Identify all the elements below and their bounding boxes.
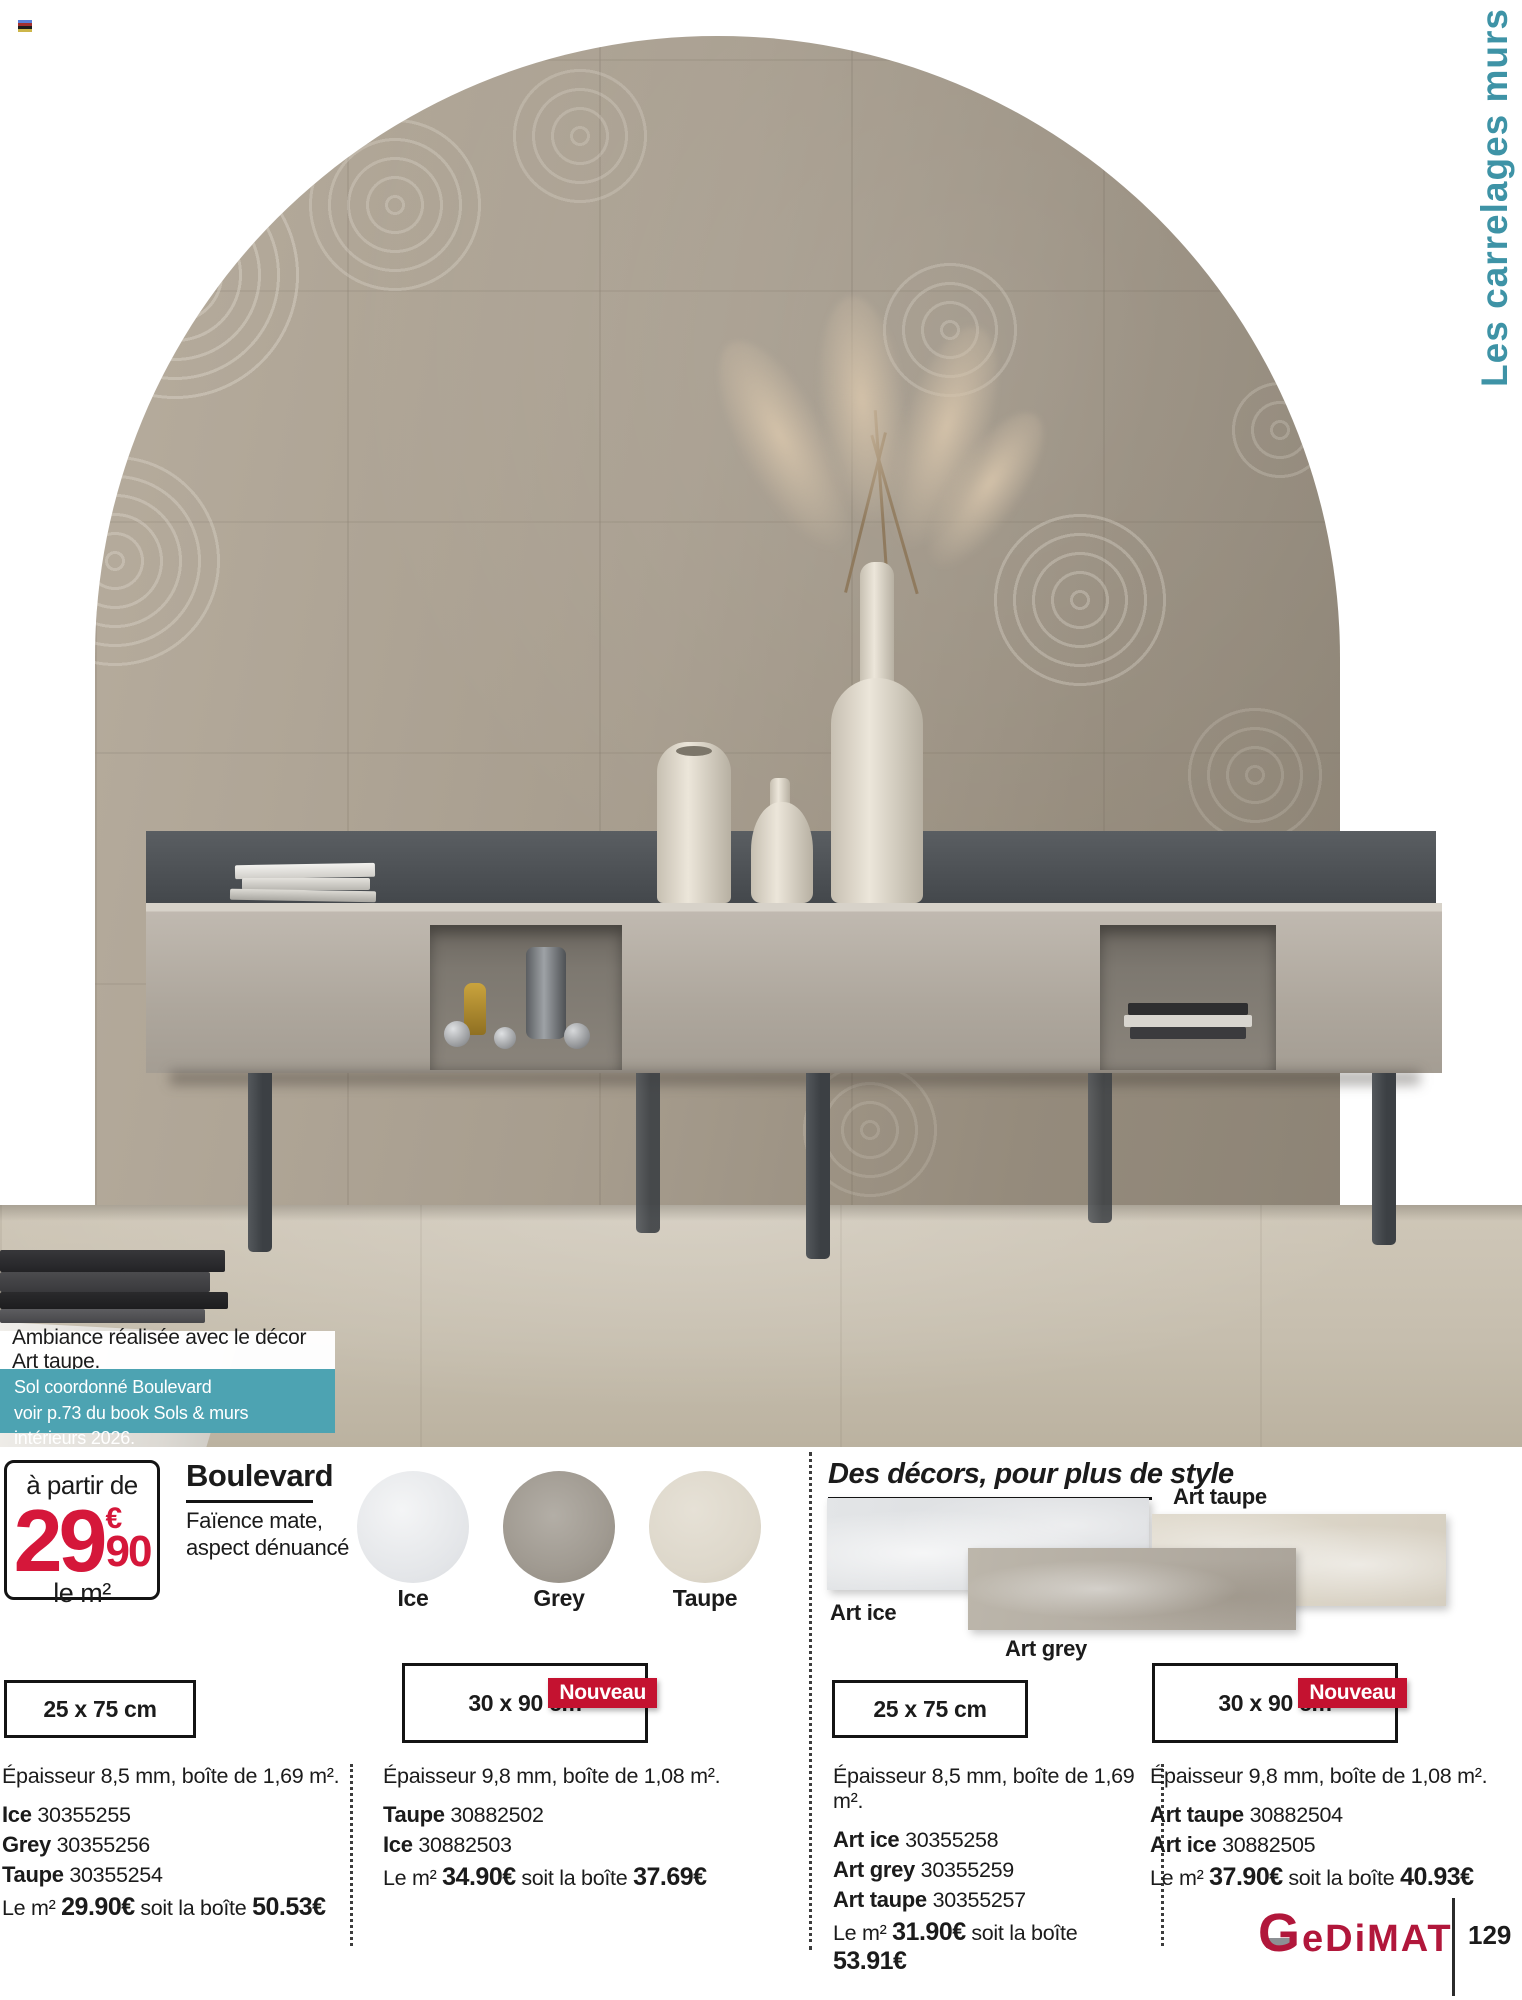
note-line2: voir p.73 du book Sols & murs intérieurs… [14,1401,325,1447]
ref-sku: 30355254 [69,1863,162,1887]
product-details-decors-25x75: Épaisseur 8,5 mm, boîte de 1,69 m². Art … [833,1764,1153,1976]
box-price: 53.91€ [833,1947,906,1975]
size-box-30x90: 30 x 90 cm Nouveau [402,1663,648,1743]
damask-medallion [985,505,1175,695]
size-box-30x90-decor: 30 x 90 cm Nouveau [1152,1663,1398,1743]
ref-name: Taupe [383,1802,445,1827]
ref-line: Ice 30355255 [2,1800,342,1830]
ref-name: Art grey [833,1857,915,1882]
photo-caption-text: Ambiance réalisée avec le décor Art taup… [12,1326,335,1374]
size-label: 25 x 75 cm [43,1696,156,1723]
cylinder-vase-mouth [676,746,712,756]
tall-vase-neck [860,562,894,692]
sideboard-open-niche [430,925,622,1070]
shelf-books [1128,1003,1248,1015]
price-amount-row: 29 € 90 [7,1501,157,1580]
box-label: soit la boîte [1288,1866,1394,1890]
cylinder-vase [657,742,731,903]
size-box-25x75: 25 x 75 cm [4,1680,196,1738]
ref-sku: 30355257 [933,1888,1026,1912]
price-line: Le m² 34.90€ soit la boîte 37.69€ [383,1863,763,1892]
size-label: 25 x 75 cm [873,1696,986,1723]
shelf-books [1130,1027,1246,1039]
shelf-books [1124,1015,1252,1027]
box-price: 40.93€ [1400,1863,1473,1891]
m2-label: Le m² [1150,1866,1203,1890]
stacked-books [242,878,370,890]
box-price: 50.53€ [252,1893,325,1921]
sideboard-leg [806,1073,830,1259]
size-box-25x75-decor: 25 x 75 cm [832,1680,1028,1738]
product-name: Boulevard [186,1458,333,1494]
ref-name: Ice [2,1802,32,1827]
section-title-vertical: Les carrelages murs [1474,8,1516,387]
silver-ball [494,1027,516,1049]
photo-caption: Ambiance réalisée avec le décor Art taup… [0,1331,335,1369]
section-divider [809,1452,812,1950]
silver-jar [526,947,566,1039]
silver-ball [564,1023,590,1049]
thickness-note: Épaisseur 9,8 mm, boîte de 1,08 m². [383,1764,763,1789]
sideboard [146,903,1442,1073]
ref-line: Art taupe 30882504 [1150,1800,1522,1830]
m2-label: Le m² [2,1896,55,1920]
nouveau-badge: Nouveau [1298,1678,1407,1708]
box-price: 37.69€ [633,1863,706,1891]
wall-floor-shadow [0,1205,1522,1221]
nouveau-badge: Nouveau [548,1678,657,1708]
ref-line: Art ice 30882505 [1150,1830,1522,1860]
swatch-label-ice: Ice [357,1585,469,1612]
note-line1: Sol coordonné Boulevard [14,1375,325,1401]
footer-divider [1452,1898,1455,1996]
price-cents: 90 [105,1532,150,1572]
m2-label: Le m² [833,1921,886,1945]
m2-price: 34.90€ [442,1863,515,1891]
product-details-boulevard-30x90: Épaisseur 9,8 mm, boîte de 1,08 m². Taup… [383,1764,763,1892]
floor-books [0,1272,210,1292]
tall-vase-body [831,678,923,903]
ref-name: Ice [383,1832,413,1857]
ref-sku: 30355256 [57,1833,150,1857]
gedimat-logo: GeDiMAT [1258,1902,1453,1964]
catalog-page: Ambiance réalisée avec le décor Art taup… [0,0,1522,2000]
product-name-underline [186,1500,313,1503]
ref-sku: 30355258 [905,1828,998,1852]
swatch-label-taupe: Taupe [649,1585,761,1612]
product-details-boulevard-25x75: Épaisseur 8,5 mm, boîte de 1,69 m². Ice … [2,1764,342,1922]
coordinated-floor-note: Sol coordonné Boulevard voir p.73 du boo… [0,1369,335,1433]
ref-sku: 30882503 [418,1833,511,1857]
decor-tile-art-grey [968,1548,1296,1630]
floor-books [0,1292,228,1309]
ref-line: Ice 30882503 [383,1830,763,1860]
floor-books [0,1309,205,1323]
ref-sku: 30882504 [1250,1803,1343,1827]
ref-name: Art taupe [833,1887,927,1912]
sideboard-leg [636,1073,660,1233]
price-line: Le m² 37.90€ soit la boîte 40.93€ [1150,1863,1522,1892]
silver-ball [444,1021,470,1047]
thickness-note: Épaisseur 8,5 mm, boîte de 1,69 m². [2,1764,342,1789]
ref-line: Art ice 30355258 [833,1825,1153,1855]
m2-price: 31.90€ [892,1918,965,1946]
column-divider [350,1764,353,1946]
price-badge: à partir de 29 € 90 le m² [4,1460,160,1600]
ref-line: Taupe 30355254 [2,1860,342,1890]
ref-sku: 30355259 [921,1858,1014,1882]
product-details-decors-30x90: Épaisseur 9,8 mm, boîte de 1,08 m². Art … [1150,1764,1522,1892]
sideboard-open-niche [1100,925,1276,1070]
swatch-grey [503,1471,615,1583]
decor-label-art-taupe: Art taupe [1173,1484,1267,1510]
box-label: soit la boîte [521,1866,627,1890]
product-desc-line1: Faïence mate, [186,1508,323,1534]
price-line: Le m² 29.90€ soit la boîte 50.53€ [2,1893,342,1922]
swatch-ice [357,1471,469,1583]
price-line: Le m² 31.90€ soit la boîte 53.91€ [833,1918,1153,1976]
damask-medallion [510,66,650,206]
sideboard-shadow [170,1071,1420,1085]
sideboard-leg [248,1073,272,1252]
ref-name: Taupe [2,1862,64,1887]
box-label: soit la boîte [140,1896,246,1920]
ref-line: Art taupe 30355257 [833,1885,1153,1915]
product-desc-line2: aspect dénuancé [186,1535,349,1561]
ref-line: Taupe 30882502 [383,1800,763,1830]
stacked-books [235,863,375,879]
ref-name: Grey [2,1832,51,1857]
thickness-note: Épaisseur 9,8 mm, boîte de 1,08 m². [1150,1764,1522,1789]
floor-books [0,1250,225,1272]
ref-name: Art ice [833,1827,899,1852]
m2-price: 29.90€ [61,1893,134,1921]
ref-sku: 30882502 [450,1803,543,1827]
ref-sku: 30355255 [37,1803,130,1827]
ref-name: Art ice [1150,1832,1216,1857]
page-number: 129 [1468,1920,1511,1951]
ref-line: Art grey 30355259 [833,1855,1153,1885]
m2-label: Le m² [383,1866,436,1890]
damask-medallion [1220,370,1340,490]
ref-sku: 30882505 [1222,1833,1315,1857]
thickness-note: Épaisseur 8,5 mm, boîte de 1,69 m². [833,1764,1153,1814]
swatch-label-grey: Grey [503,1585,615,1612]
damask-medallion [300,110,490,300]
sideboard-leg [1372,1073,1396,1245]
swatch-taupe [649,1471,761,1583]
decor-label-art-grey: Art grey [1005,1636,1087,1662]
color-bars-icon [18,20,32,32]
decor-label-art-ice: Art ice [830,1600,896,1626]
damask-medallion [1180,700,1330,850]
m2-price: 37.90€ [1209,1863,1282,1891]
room-photo: Ambiance réalisée avec le décor Art taup… [0,0,1522,1447]
box-label: soit la boîte [971,1921,1077,1945]
price-euros: 29 [14,1501,104,1580]
ref-line: Grey 30355256 [2,1830,342,1860]
ref-name: Art taupe [1150,1802,1244,1827]
small-vase-body [751,802,813,903]
sideboard-leg [1088,1073,1112,1223]
